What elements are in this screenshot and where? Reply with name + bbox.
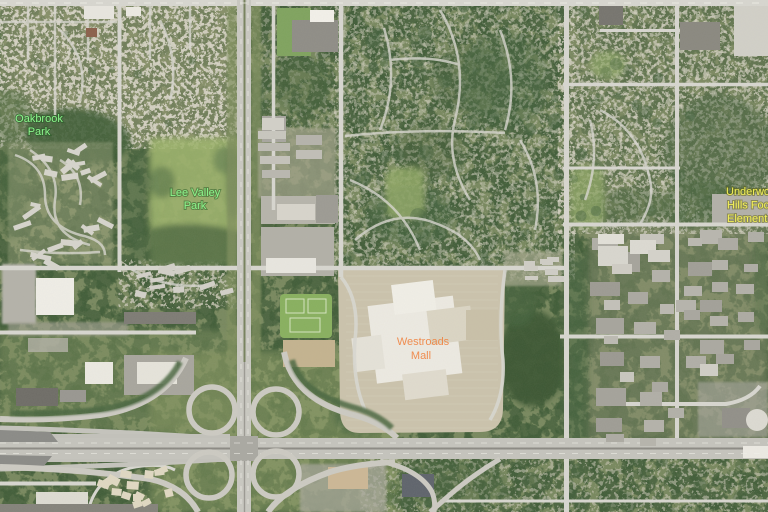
svg-text:Hills Focus: Hills Focus [727,200,768,212]
svg-text:Lee Valley: Lee Valley [170,187,221,199]
svg-text:Underwood: Underwood [726,186,768,198]
svg-text:Mall: Mall [411,350,431,362]
svg-text:Oakbrook: Oakbrook [15,113,63,125]
svg-text:Park: Park [28,126,51,138]
svg-text:Elementary: Elementary [727,213,768,225]
svg-text:Westroads: Westroads [397,336,450,348]
svg-text:Park: Park [184,200,207,212]
